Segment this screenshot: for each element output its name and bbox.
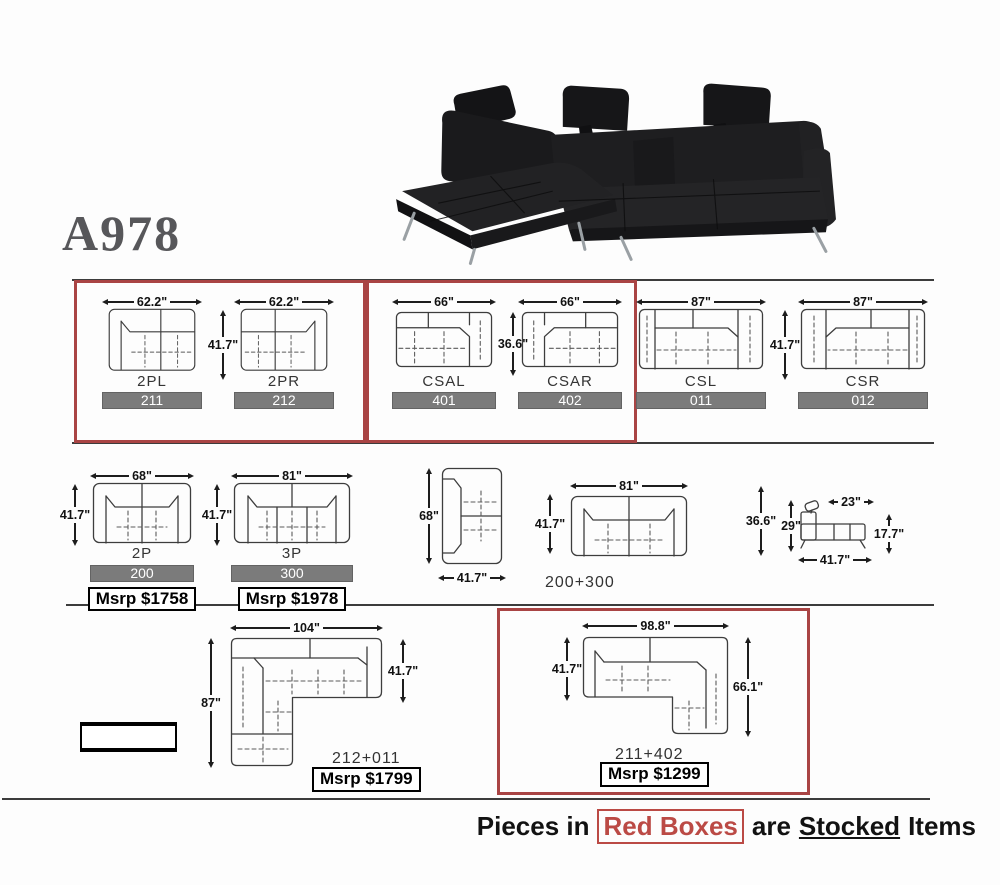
diagram-2p — [92, 482, 192, 544]
diagram-combo — [570, 495, 688, 557]
msrp-3p: Msrp $1978 — [238, 587, 347, 612]
diagram-csr — [800, 308, 926, 370]
sofa-illustration — [396, 84, 836, 250]
label-l1: 212+011 — [332, 750, 401, 768]
piece-2p: 68" 2P 200 Msrp $1758 — [90, 470, 194, 611]
name-3p: 3P — [282, 546, 302, 563]
name-csr: CSR — [846, 374, 881, 391]
dim-width-l1: 104" — [230, 622, 383, 634]
product-photo — [372, 50, 844, 270]
msrp-l1: Msrp $1799 — [312, 767, 421, 792]
name-csl: CSL — [685, 374, 717, 391]
label-combo: 200+300 — [545, 574, 615, 592]
dim-width-chaise: 41.7" — [438, 572, 506, 584]
dim-left-height-l2: 41.7" — [550, 637, 584, 701]
piece-2pr: 62.2" 2PR 212 — [234, 296, 334, 409]
dim-side-depth: 41.7" — [798, 554, 872, 566]
code-bar-2p: 200 — [90, 565, 194, 582]
code-bar-csar: 402 — [518, 392, 622, 409]
dim-width-3p: 81" — [231, 470, 353, 482]
piece-csar: 66" CSAR 402 — [518, 296, 622, 409]
dim-height-group3: 41.7" — [768, 310, 802, 380]
piece-csl: 87" CSL 011 — [636, 296, 766, 409]
name-csar: CSAR — [547, 374, 593, 391]
footer-prefix: Pieces in — [477, 811, 590, 842]
name-2pr: 2PR — [268, 374, 300, 391]
empty-label-box — [80, 722, 177, 752]
diagram-2pl — [106, 308, 198, 372]
dim-width-2p: 68" — [90, 470, 194, 482]
name-2p: 2P — [132, 546, 152, 563]
dim-height-combo: 41.7" — [533, 494, 567, 554]
msrp-l2: Msrp $1299 — [600, 762, 709, 787]
code-bar-3p: 300 — [231, 565, 353, 582]
name-csal: CSAL — [422, 374, 465, 391]
diagram-csal — [395, 311, 493, 368]
code-bar-csal: 401 — [392, 392, 496, 409]
diagram-3p — [233, 482, 351, 544]
dim-right-height-l1: 41.7" — [386, 639, 420, 703]
footer-stocked: Stocked — [799, 811, 900, 842]
diagram-csar — [521, 311, 619, 368]
dim-width-csl: 87" — [636, 296, 766, 308]
footer-suffix: Items — [908, 811, 976, 842]
dim-width-combo: 81" — [570, 480, 688, 492]
diagram-2pr — [238, 308, 330, 372]
dim-width-csal: 66" — [392, 296, 496, 308]
dim-left-height-l1: 87" — [194, 638, 228, 768]
piece-3p: 81" 3P 300 Msrp $1978 — [231, 470, 353, 611]
diagram-side-profile — [798, 494, 870, 552]
footer-middle: are — [752, 811, 791, 842]
diagram-chaise-vertical — [441, 467, 503, 565]
msrp-2p: Msrp $1758 — [88, 587, 197, 612]
piece-2pl: 62.2" 2PL 211 — [102, 296, 202, 409]
dim-width-2pr: 62.2" — [234, 296, 334, 308]
spec-sheet-page: A978 62.2" 2PL 211 41.7" 62.2" — [0, 0, 1000, 885]
piece-csr: 87" CSR 012 — [798, 296, 928, 409]
page-title: A978 — [62, 204, 181, 262]
diagram-sectional-212-011 — [230, 637, 383, 767]
diagram-csl — [638, 308, 764, 370]
dim-side-outer-height: 36.6" — [744, 486, 778, 556]
dim-height-3p: 41.7" — [200, 484, 234, 546]
diagram-sectional-211-402 — [582, 636, 729, 736]
code-bar-2pr: 212 — [234, 392, 334, 409]
footer-red-boxes: Red Boxes — [597, 809, 743, 844]
dim-height-2p: 41.7" — [58, 484, 92, 546]
code-bar-csl: 011 — [636, 392, 766, 409]
name-2pl: 2PL — [137, 374, 167, 391]
code-bar-2pl: 211 — [102, 392, 202, 409]
row3-bottom-rule — [2, 798, 930, 800]
code-bar-csr: 012 — [798, 392, 928, 409]
dim-side-seat-height: 17.7" — [872, 514, 906, 554]
dim-right-height-l2: 66.1" — [731, 637, 765, 737]
dim-width-2pl: 62.2" — [102, 296, 202, 308]
piece-csal: 66" CSAL 401 — [392, 296, 496, 409]
footer-note: Pieces inRed BoxesareStockedItems — [477, 809, 976, 844]
dim-width-l2: 98.8" — [582, 620, 729, 632]
dim-width-csr: 87" — [798, 296, 928, 308]
dim-width-csar: 66" — [518, 296, 622, 308]
